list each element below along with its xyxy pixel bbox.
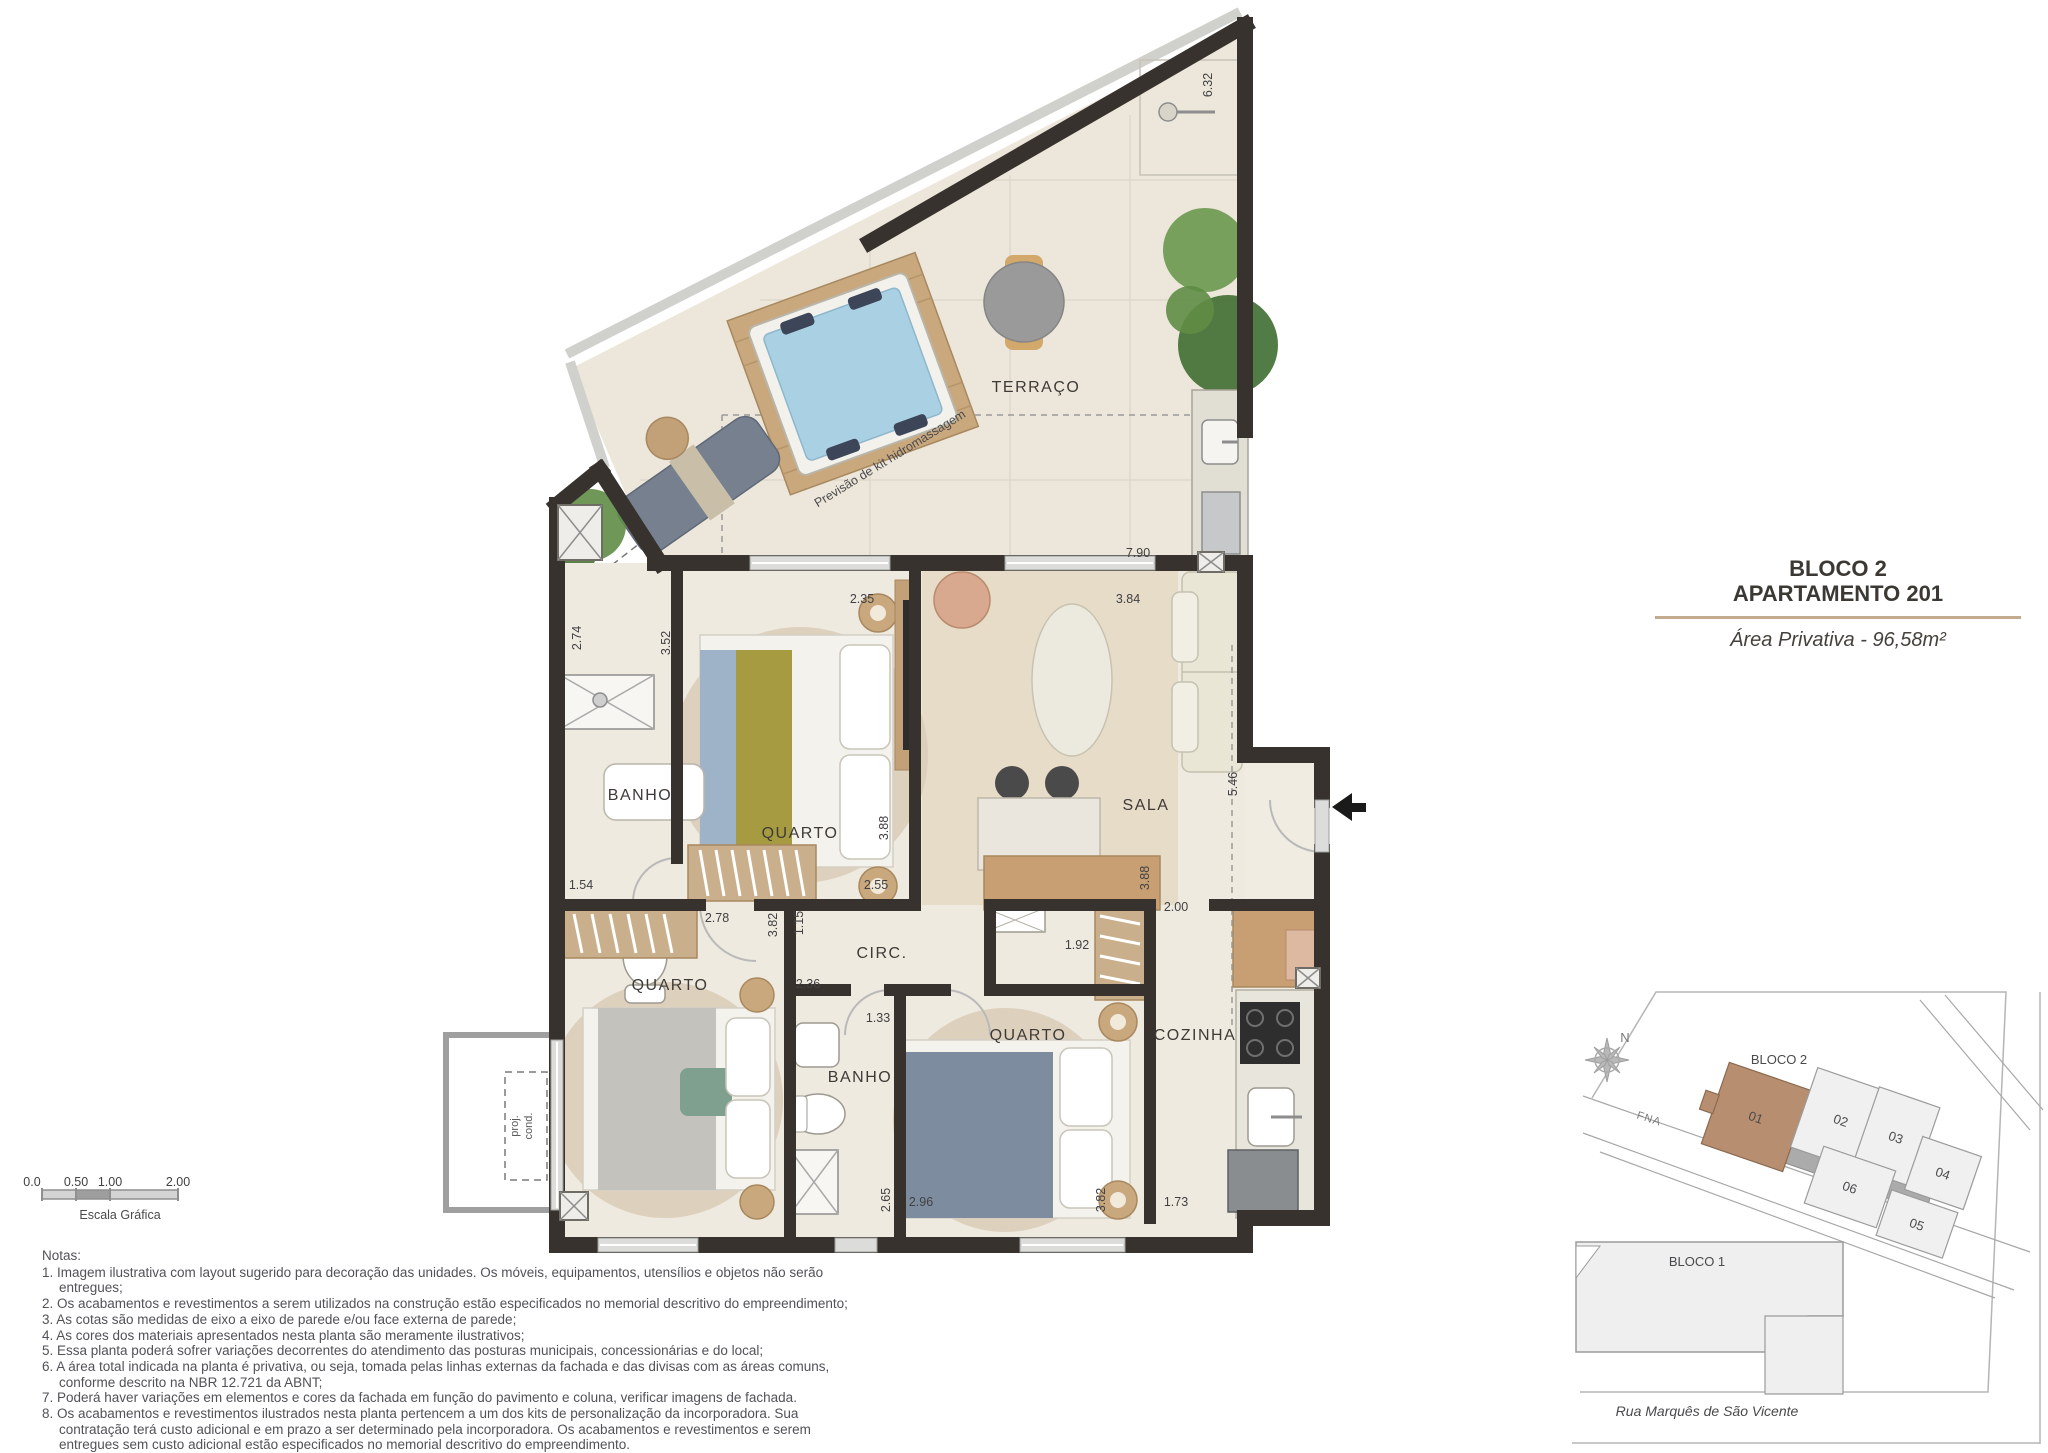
dim-label: 2.74 (570, 626, 584, 650)
dim-label: 7.90 (1126, 546, 1150, 560)
note-item: 3. As cotas são medidas de eixo a eixo d… (42, 1312, 864, 1328)
cozinha-fixtures (1228, 907, 1321, 1218)
room-label-terraco: TERRAÇO (992, 379, 1081, 396)
road-label-group: FNA (1635, 1110, 1662, 1129)
room-label-banho1: BANHO (608, 787, 672, 804)
scale-tick-label: 1.00 (98, 1175, 122, 1189)
bloco1-label: BLOCO 1 (1669, 1254, 1725, 1269)
bloco2-units: 01 02 03 04 05 06 BLOCO 2 (1689, 1052, 1981, 1258)
entry-arrow-icon (1332, 793, 1366, 821)
dim-label: 3.82 (1094, 1188, 1108, 1212)
note-item: 6. A área total indicada na planta é pri… (42, 1359, 864, 1390)
shaft-x-icon (1296, 968, 1320, 988)
dim-label: 1.92 (1065, 938, 1089, 952)
dim-label: 2.96 (909, 1195, 933, 1209)
scale-tick-label: 0.0 (23, 1175, 40, 1189)
shaft-x-icon (1198, 552, 1224, 572)
building-title: BLOCO 2 (1655, 556, 2021, 581)
shaft-x-icon (558, 505, 602, 560)
private-area-label: Área Privativa - 96,58m² (1655, 629, 2021, 652)
notes-heading: Notas: (42, 1248, 864, 1264)
dim-label: 1.33 (866, 1011, 890, 1025)
dim-label: 2.78 (705, 911, 729, 925)
scale-tick-label: 2.00 (166, 1175, 190, 1189)
note-item: 4. As cores dos materiais apresentados n… (42, 1328, 864, 1344)
room-label-cozinha: COZINHA (1154, 1027, 1237, 1044)
dim-label: 5.46 (1226, 772, 1240, 796)
proj-cond-lower: proj. cond. (446, 1035, 557, 1210)
dim-label: 2.55 (864, 878, 888, 892)
proj-cond-label: proj. (509, 1115, 521, 1136)
floor-plan: Previsão de kit hidromassagem proj. cond… (440, 0, 1390, 1260)
banho2-fixtures (790, 1023, 845, 1214)
floor-plan-sheet: { "title_block": { "building": "BLOCO 2"… (0, 0, 2048, 1449)
room-label-quarto3: QUARTO (990, 1027, 1067, 1044)
room-label-quarto2: QUARTO (632, 977, 709, 994)
dim-label: 3.88 (877, 816, 891, 840)
dim-label: 1.15 (792, 911, 806, 935)
dim-label: 2.36 (796, 977, 820, 991)
room-label-sala: SALA (1123, 797, 1170, 814)
bloco1-building: BLOCO 1 (1576, 1242, 1843, 1394)
scale-bar: 0.0 0.50 1.00 2.00 Escala Gráfica (23, 1175, 190, 1222)
site-plan: FNA 01 02 03 04 05 06 BLOCO 2 (1570, 990, 2048, 1449)
wardrobe (688, 845, 816, 901)
dim-label: 2.35 (850, 592, 874, 606)
dim-label: 1.54 (569, 878, 593, 892)
room-label-quarto1: QUARTO (762, 825, 839, 842)
note-item: 7. Poderá haver variações em elementos e… (42, 1390, 864, 1406)
terrace: Previsão de kit hidromassagem proj. cond… (553, 12, 1278, 638)
proj-cond-label: cond. (523, 1113, 535, 1140)
scale-bar-label: Escala Gráfica (79, 1208, 160, 1222)
road-label: FNA (1635, 1110, 1662, 1129)
dim-label: 3.84 (1116, 592, 1140, 606)
street-label: Rua Marquês de São Vicente (1616, 1403, 1799, 1419)
note-item: 2. Os acabamentos e revestimentos a sere… (42, 1296, 864, 1312)
scale-tick-label: 0.50 (64, 1175, 88, 1189)
note-item: 8. Os acabamentos e revestimentos ilustr… (42, 1406, 864, 1453)
wardrobe (562, 910, 697, 958)
dim-label: 6.32 (1201, 73, 1215, 97)
title-block: BLOCO 2 APARTAMENTO 201 Área Privativa -… (1655, 556, 2021, 652)
note-item: 5. Essa planta poderá sofrer variações d… (42, 1343, 864, 1359)
dim-label: 2.65 (879, 1188, 893, 1212)
graphic-scale: 0.0 0.50 1.00 2.00 Escala Gráfica (20, 1168, 280, 1238)
notes-block: Notas: 1. Imagem ilustrativa com layout … (42, 1248, 864, 1453)
note-item: 1. Imagem ilustrativa com layout sugerid… (42, 1265, 864, 1296)
room-label-circ: CIRC. (856, 945, 907, 962)
title-rule (1655, 616, 2021, 619)
dim-label: 2.00 (1164, 900, 1188, 914)
dim-label: 1.73 (1164, 1195, 1188, 1209)
bloco2-label: BLOCO 2 (1751, 1052, 1807, 1067)
north-label: N (1620, 1030, 1629, 1045)
room-label-banho2: BANHO (828, 1069, 892, 1086)
dim-label: 3.52 (659, 631, 673, 655)
dim-label: 3.82 (766, 913, 780, 937)
dim-label: 3.88 (1138, 866, 1152, 890)
unit-title: APARTAMENTO 201 (1655, 581, 2021, 606)
compass-icon: N (1585, 1030, 1630, 1082)
quarto1-furniture (688, 594, 897, 905)
shaft-x-icon (560, 1192, 588, 1220)
